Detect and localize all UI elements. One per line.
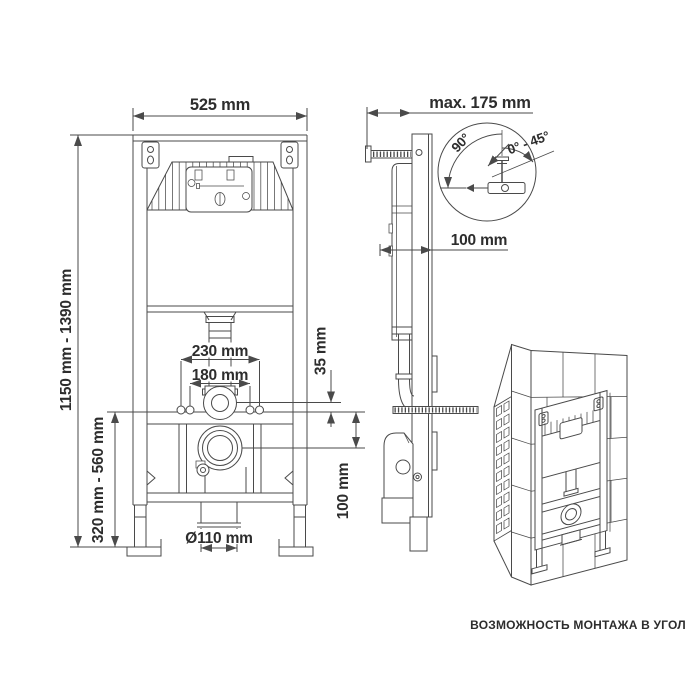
dim-bolt-outer-label: 230 mm — [192, 343, 249, 360]
perforated-brick-wall — [494, 397, 512, 542]
corner-installation-view: ВОЗМОЖНОСТЬ МОНТАЖА В УГОЛ — [470, 345, 686, 633]
dim-height-range-label: 1150 mm - 1390 mm — [58, 269, 75, 411]
corner-caption: ВОЗМОЖНОСТЬ МОНТАЖА В УГОЛ — [470, 618, 686, 632]
technical-drawing: 525 mm 1150 mm - 1390 mm 320 mm - 560 mm… — [0, 0, 700, 700]
dim-outlet-diameter-label: Ø110 mm — [185, 530, 253, 547]
fixing-stud — [393, 407, 478, 414]
cistern — [147, 157, 293, 321]
dim-drain-height-label: 100 mm — [335, 463, 352, 520]
dim-inlet-offset-label: 35 mm — [313, 327, 330, 375]
wall-anchor-rod — [366, 146, 413, 162]
dim-wall-distance-label: max. 175 mm — [429, 94, 530, 112]
dim-width-label: 525 mm — [190, 96, 250, 114]
bracket-angle-detail: 90° 0° - 45° — [438, 123, 554, 221]
angle-range-label: 0° - 45° — [505, 128, 551, 157]
cistern-side-profile — [389, 164, 414, 412]
drain-outlet — [196, 426, 242, 476]
dim-frame-depth-label: 100 mm — [451, 232, 508, 249]
angle-90-label: 90° — [448, 131, 473, 156]
dim-lower-range-label: 320 mm - 560 mm — [90, 417, 107, 543]
page: 525 mm 1150 mm - 1390 mm 320 mm - 560 mm… — [0, 0, 700, 700]
dim-bolt-inner-label: 180 mm — [192, 367, 249, 384]
